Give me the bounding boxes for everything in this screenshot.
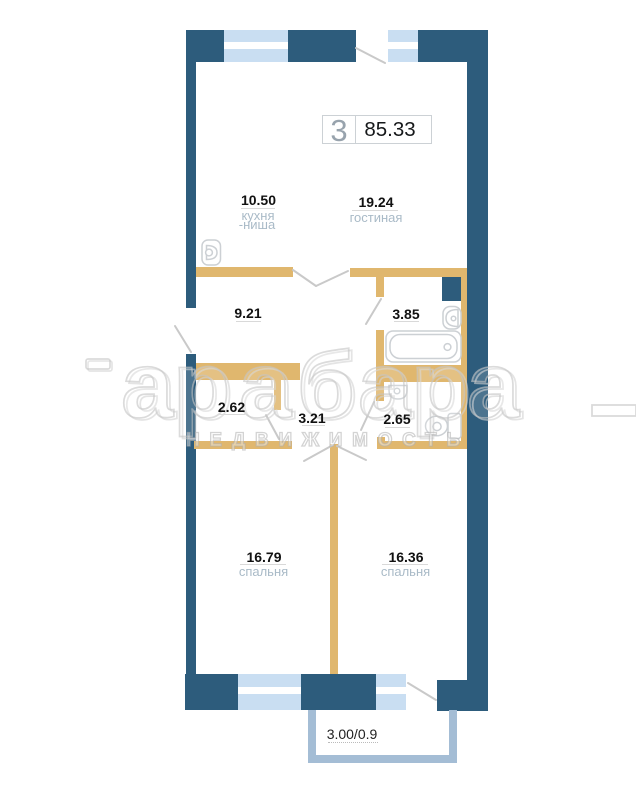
svg-text:а: а	[467, 332, 520, 437]
svg-text:р: р	[173, 332, 230, 437]
svg-text:а: а	[121, 332, 174, 437]
